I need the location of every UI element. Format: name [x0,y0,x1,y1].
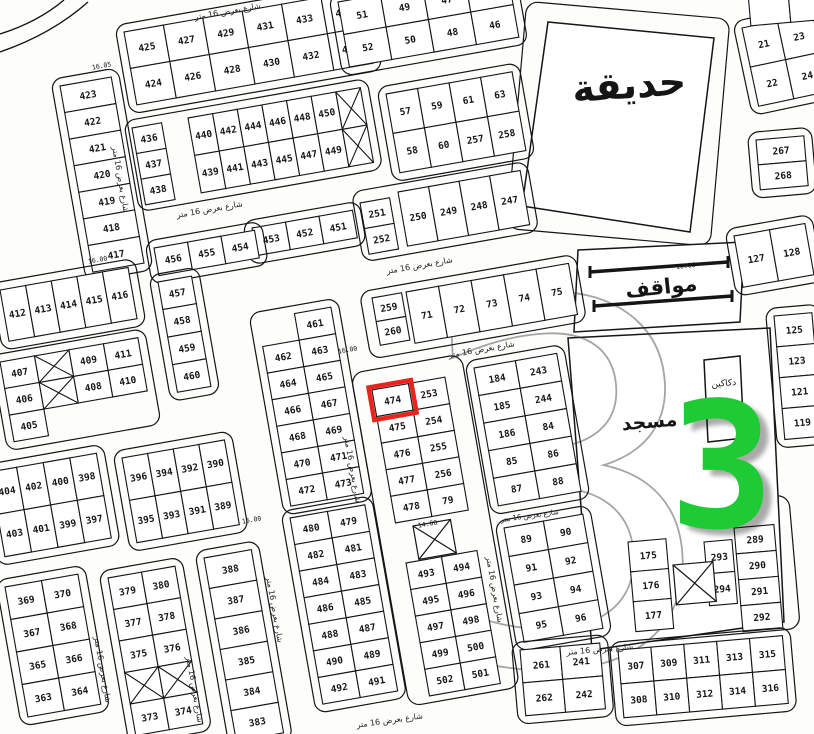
plot-number: 93 [530,590,543,603]
plot-number: 74 [518,292,531,305]
plot-number: 50 [404,34,417,47]
plot-number: 119 [793,417,811,429]
plot-number: 121 [791,386,809,398]
plot-number: 61 [462,94,475,107]
plot-number: 312 [696,688,714,700]
plot-cell [748,0,790,26]
plot-number: 59 [430,100,443,113]
plot-number: 175 [639,550,657,562]
plot-number: 261 [532,659,550,671]
plot-number: 86 [547,448,560,461]
plot-cell [788,0,814,22]
plot-number: 310 [663,691,681,703]
plot-number: 309 [660,657,678,669]
plot-number: 51 [356,9,369,22]
plot-number: 95 [535,619,548,632]
plot-number: 88 [552,476,565,489]
block-col-175-177: 175176177 [628,539,674,632]
plot-number: 311 [693,654,711,666]
plot-number: 72 [453,304,466,317]
plot-number: 123 [788,355,806,367]
plot-number: 315 [758,649,776,661]
plot-number: 242 [575,689,593,701]
plot-number: 267 [772,145,790,157]
plot-number: 262 [535,692,553,704]
plot-number: 84 [542,421,555,434]
cadastral-map-canvas: 3حديقةمواقفمسجددكاكين4234224214204194184… [0,0,814,734]
cadastral-map: 3حديقةمواقفمسجددكاكين4234224214204194184… [0,0,814,734]
plot-number: 57 [399,105,412,118]
plot-number: 94 [569,584,582,597]
plot-number: 176 [642,580,660,592]
plot-number: 92 [564,555,577,568]
plot-number: 49 [398,2,411,15]
plot-number: 307 [627,660,645,672]
plot-number: 79 [441,495,454,508]
plot-number: 48 [446,27,459,40]
plot-number: 58 [406,145,419,158]
plot-number: 291 [751,586,769,598]
plot-number: 63 [493,89,506,102]
plot-number: 313 [726,652,744,664]
plot-number: 314 [729,685,747,697]
plot-number: 85 [505,455,518,468]
plot-number: 46 [488,19,501,32]
plot-number: 89 [520,533,533,546]
plot-number: 52 [361,42,374,55]
plot-number: 75 [550,286,563,299]
plot-number: 96 [574,612,587,625]
district-number-3: 3 [669,366,774,569]
plot-number: 73 [485,298,498,311]
plot-number: 87 [510,483,523,496]
plot-number: 71 [420,309,433,322]
plot-number: 316 [761,683,779,695]
area-label-garden: حديقة [571,59,688,111]
plot-number: 241 [572,656,590,668]
plot-number: 177 [645,610,663,622]
plot-number: 125 [785,325,803,337]
plot-number: 24 [801,70,814,83]
plot-number: 292 [753,612,771,624]
plot-number: 60 [437,139,450,152]
plot-number: 91 [525,562,538,575]
plot-number: 90 [559,526,572,539]
plot-number: 308 [630,694,648,706]
plot-number: 22 [766,77,779,90]
plot-number: 268 [774,170,792,182]
